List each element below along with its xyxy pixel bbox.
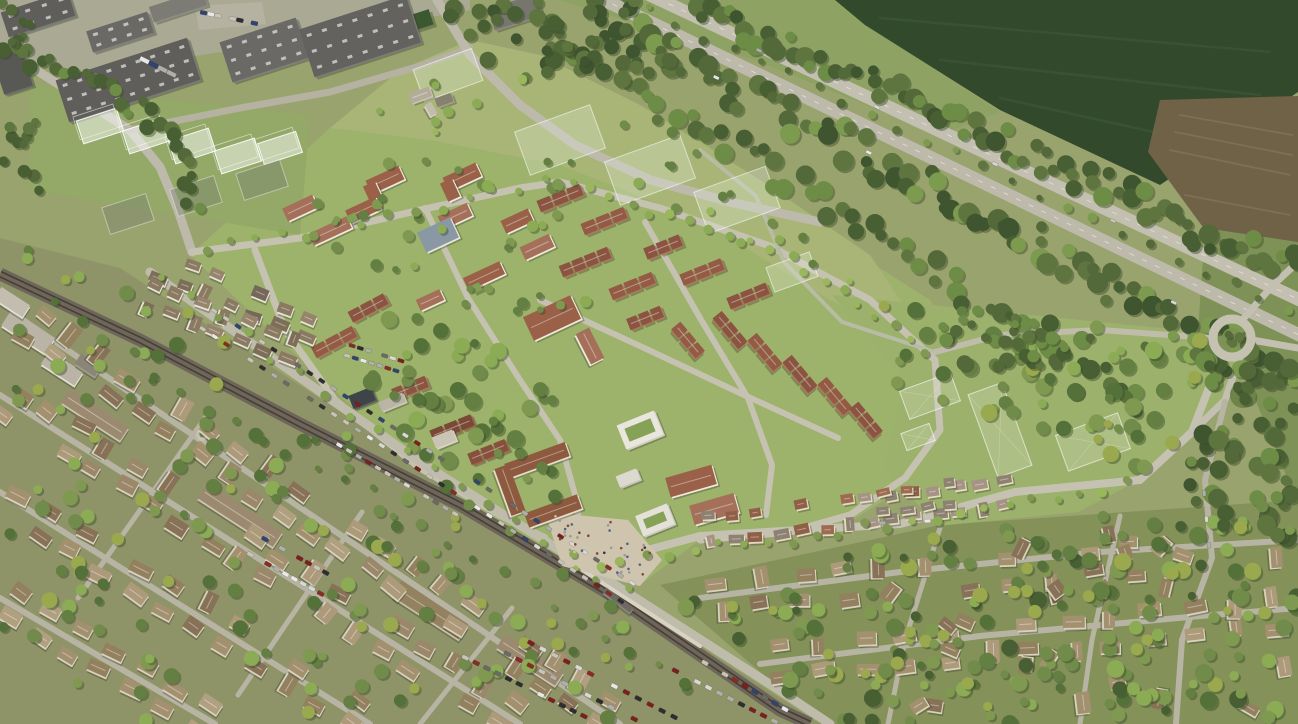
aerial-development-rendering <box>0 0 1298 724</box>
aerial-render-figure <box>0 0 1298 724</box>
